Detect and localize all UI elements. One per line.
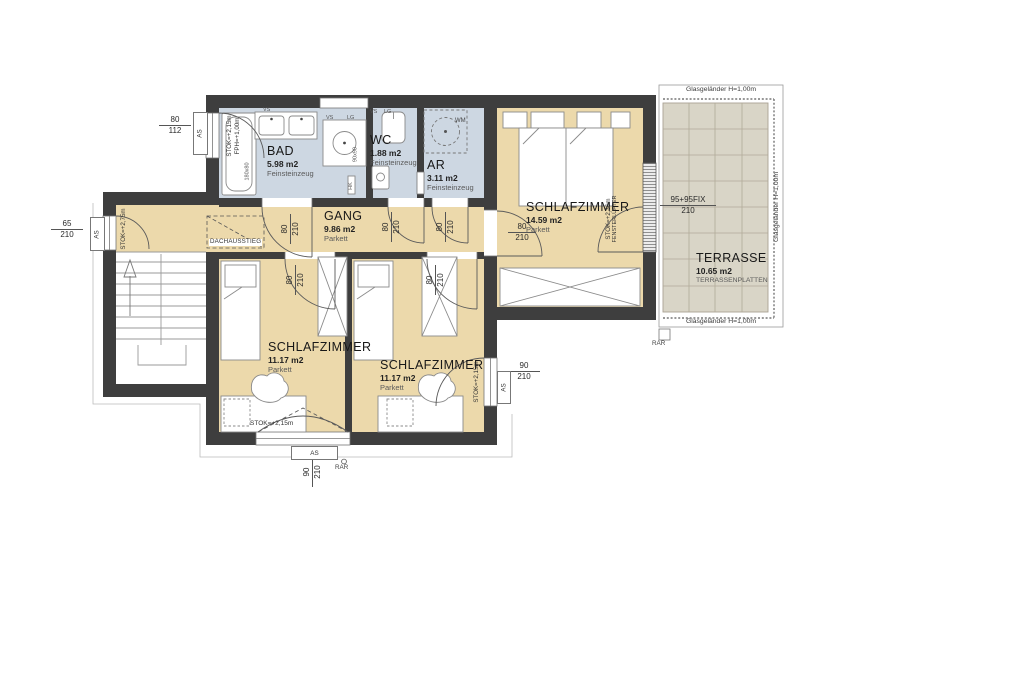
vs-label-wc: VS <box>370 109 377 115</box>
floor-plan: BAD 5.98 m2 Feinsteinzeug WC 1.88 m2 Fei… <box>0 0 1024 683</box>
dim-bad-window: 80 112 <box>159 115 191 137</box>
room-label-wc: WC 1.88 m2 Feinsteinzeug <box>370 134 417 167</box>
level-label-terrace-door: STOK=+2,36m FENSTERLÜFTER <box>605 183 619 255</box>
dim-door-top-bedroom: 80 210 <box>508 222 536 244</box>
level-label-bad-window: STOK=+2,15m FPH=+1,00m <box>226 106 242 166</box>
railing-label-top: Glasgeländer H=1,00m <box>659 86 783 93</box>
railing-label-bottom: Glasgeländer H=1,00m <box>659 318 783 325</box>
vs-label-shower: VS <box>326 115 333 121</box>
floor-plan-geometry <box>0 0 1024 683</box>
level-label-gang-window: STOK=+2,75m <box>119 201 129 257</box>
single-bed-left <box>221 261 260 360</box>
rar-label-terrace: RAR <box>652 341 665 348</box>
room-label-schlafzimmer-left: SCHLAFZIMMER 11.17 m2 Parkett <box>268 341 371 374</box>
desk-mid <box>378 396 463 432</box>
ar-duct <box>417 172 424 194</box>
dim-fix-window: 95+95FIX 210 <box>660 195 716 217</box>
dim-right-window: 90 210 <box>508 361 540 383</box>
as-marker-bottom-window: AS <box>291 446 338 460</box>
window-fix-95-95 <box>643 163 656 252</box>
bathtub-size-label: 180x80 <box>244 152 253 192</box>
rar-drain-terrace <box>659 329 670 340</box>
wm-label: WM <box>455 118 466 125</box>
level-label-bottom-window: STOK=+2,15m <box>250 420 293 428</box>
as-marker-right-window: AS <box>497 371 511 404</box>
dim-gang-window: 65 210 <box>51 219 83 241</box>
toilet <box>372 166 389 189</box>
room-label-schlafzimmer-mid: SCHLAFZIMMER 11.17 m2 Parkett <box>380 359 483 392</box>
as-marker-gang-window: AS <box>90 217 105 251</box>
lg-label-shower: LG <box>347 115 354 121</box>
shower-size-label: 90x90 <box>352 135 361 175</box>
railing-label-right: Glasgeländer H=1,00m <box>772 152 782 262</box>
wall-niche <box>320 98 368 108</box>
dim-door-bedroom-left: 80210 <box>285 265 307 295</box>
dim-door-ar: 80210 <box>435 212 457 242</box>
roof-access-label: DACHAUSSTIEG <box>209 239 262 246</box>
room-label-ar: AR 3.11 m2 Feinsteinzeug <box>427 159 474 192</box>
vs-label-basin: VS <box>263 107 270 113</box>
hk-label: HK <box>347 178 355 194</box>
room-label-terrasse: TERRASSE 10.65 m2 TERRASSENPLATTEN <box>696 252 768 285</box>
dim-bottom-window: 90210 <box>302 457 324 487</box>
dim-door-bad: 80210 <box>280 214 302 244</box>
dim-door-bedroom-mid: 80210 <box>425 265 447 295</box>
dim-door-wc: 80210 <box>381 212 403 242</box>
room-label-gang: GANG 9.86 m2 Parkett <box>324 210 362 243</box>
lg-label-wc: LG <box>384 109 391 115</box>
as-marker-bad-window: AS <box>193 112 208 155</box>
rar-label-bottom: RAR <box>335 465 348 472</box>
room-label-bad: BAD 5.98 m2 Feinsteinzeug <box>267 145 314 178</box>
level-label-right-window: STOK=+2,15m <box>472 354 482 410</box>
